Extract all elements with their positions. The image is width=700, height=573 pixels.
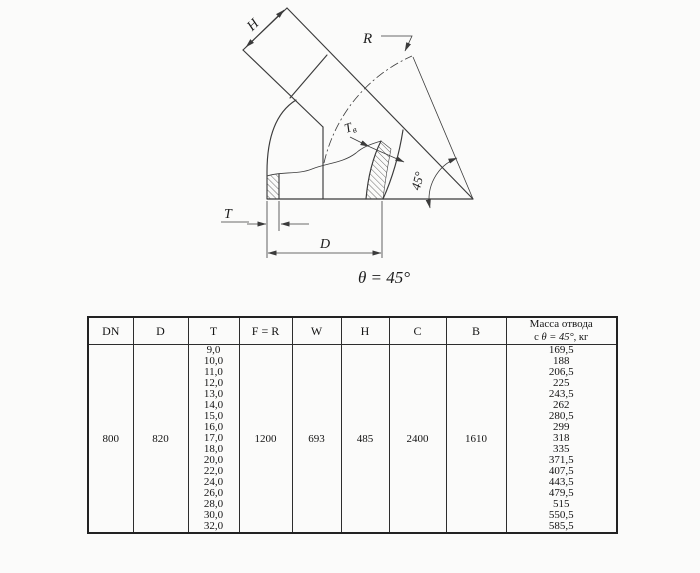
dim-r: R	[362, 31, 412, 51]
spec-table: DN D T F = R W H C B Масса отвода с θ = …	[87, 316, 618, 534]
cell-mass-values: 169,5188206,5225243,5262280,529931833537…	[506, 345, 617, 534]
dim-angle: 45°	[408, 158, 457, 208]
cell-t-values: 9,010,011,012,013,014,015,016,017,018,02…	[188, 345, 239, 534]
cell-h: 485	[341, 345, 389, 534]
dim-t-inner-label: Tв	[342, 118, 358, 137]
value-line: 585,5	[507, 521, 617, 532]
cell-d: 820	[133, 345, 188, 534]
table-header-row: DN D T F = R W H C B Масса отвода с θ = …	[88, 317, 617, 345]
col-header-f-r: F = R	[239, 317, 292, 345]
dim-angle-label: 45°	[408, 170, 427, 191]
dim-h-label: H	[244, 16, 263, 35]
col-header-mass: Масса отвода с θ = 45°, кг	[506, 317, 617, 345]
cell-f-r: 1200	[239, 345, 292, 534]
cell-dn: 800	[88, 345, 133, 534]
elbow-technical-drawing: H R Tв T D 45° θ = 45°	[0, 0, 700, 310]
col-header-b: B	[446, 317, 506, 345]
catalog-page: { "drawing": { "labels": { "h": "H", "r"…	[0, 0, 700, 573]
mass-header-line2: с θ = 45°, кг	[507, 331, 617, 344]
elbow-outline	[243, 8, 473, 199]
cell-w: 693	[292, 345, 341, 534]
col-header-d: D	[133, 317, 188, 345]
cell-b: 1610	[446, 345, 506, 534]
col-header-t: T	[188, 317, 239, 345]
dim-t-label: T	[224, 207, 233, 222]
section-hatching	[267, 141, 391, 199]
spec-table-wrapper: DN D T F = R W H C B Масса отвода с θ = …	[87, 316, 618, 534]
dim-t-inner: Tв	[342, 118, 404, 162]
dim-d: D	[268, 201, 382, 258]
dim-r-label: R	[362, 31, 372, 47]
dim-d-label: D	[319, 237, 330, 252]
table-data-row: 800 820 9,010,011,012,013,014,015,016,01…	[88, 345, 617, 534]
value-line: 32,0	[189, 521, 239, 532]
dim-h: H	[244, 10, 284, 47]
cell-c: 2400	[389, 345, 446, 534]
col-header-c: C	[389, 317, 446, 345]
col-header-h: H	[341, 317, 389, 345]
mass-header-line1: Масса отвода	[507, 318, 617, 331]
theta-caption: θ = 45°	[358, 268, 410, 287]
col-header-w: W	[292, 317, 341, 345]
col-header-dn: DN	[88, 317, 133, 345]
dim-t: T	[221, 201, 309, 258]
